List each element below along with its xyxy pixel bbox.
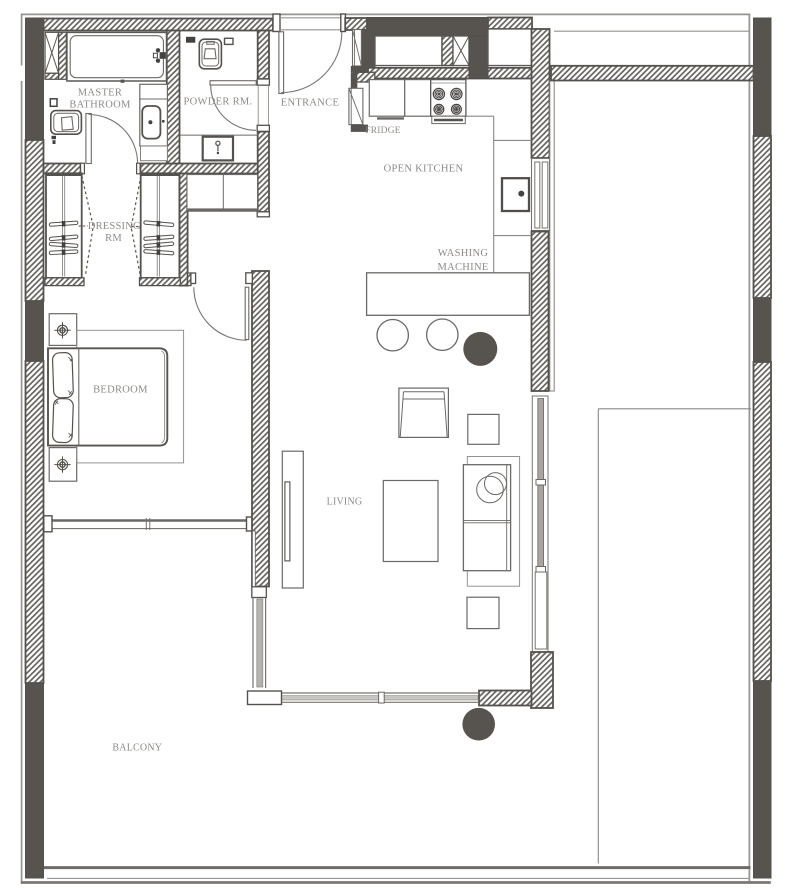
svg-text:POWDER RM.: POWDER RM.: [184, 97, 253, 108]
svg-text:MACHINE: MACHINE: [437, 262, 488, 273]
svg-text:MASTER: MASTER: [78, 88, 122, 99]
svg-text:DRESSING: DRESSING: [88, 221, 141, 232]
svg-text:BALCONY: BALCONY: [112, 743, 162, 754]
svg-text:ENTRANCE: ENTRANCE: [281, 98, 339, 109]
svg-text:FRIDGE: FRIDGE: [365, 126, 401, 136]
svg-text:BEDROOM: BEDROOM: [93, 385, 148, 396]
svg-text:LIVING: LIVING: [327, 497, 363, 508]
svg-text:WASHING: WASHING: [438, 248, 489, 259]
svg-text:BATHROOM: BATHROOM: [69, 100, 131, 111]
svg-text:OPEN KITCHEN: OPEN KITCHEN: [384, 164, 464, 175]
svg-text:RM: RM: [105, 233, 122, 244]
